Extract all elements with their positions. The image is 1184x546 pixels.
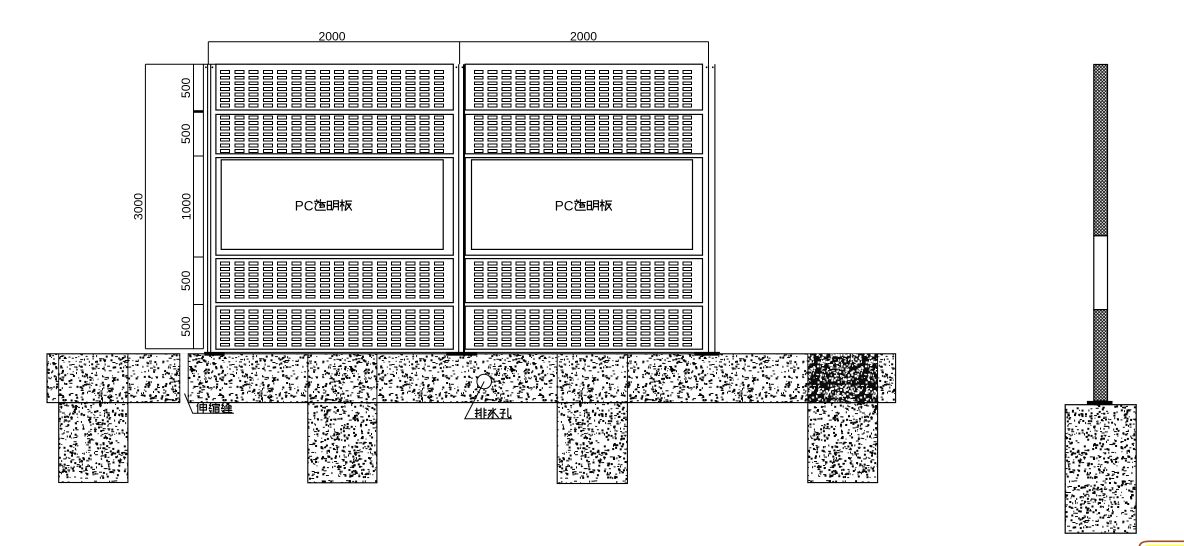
svg-text:500: 500: [179, 78, 193, 99]
svg-text:1000: 1000: [180, 193, 194, 220]
svg-text:PC: PC: [555, 198, 574, 213]
svg-text:2000: 2000: [318, 29, 345, 43]
svg-text:500: 500: [179, 270, 193, 291]
svg-text:3000: 3000: [132, 193, 146, 220]
svg-text:500: 500: [179, 316, 193, 337]
svg-text:2000: 2000: [570, 29, 597, 43]
svg-text:PC: PC: [295, 198, 314, 213]
svg-text:500: 500: [179, 123, 193, 144]
